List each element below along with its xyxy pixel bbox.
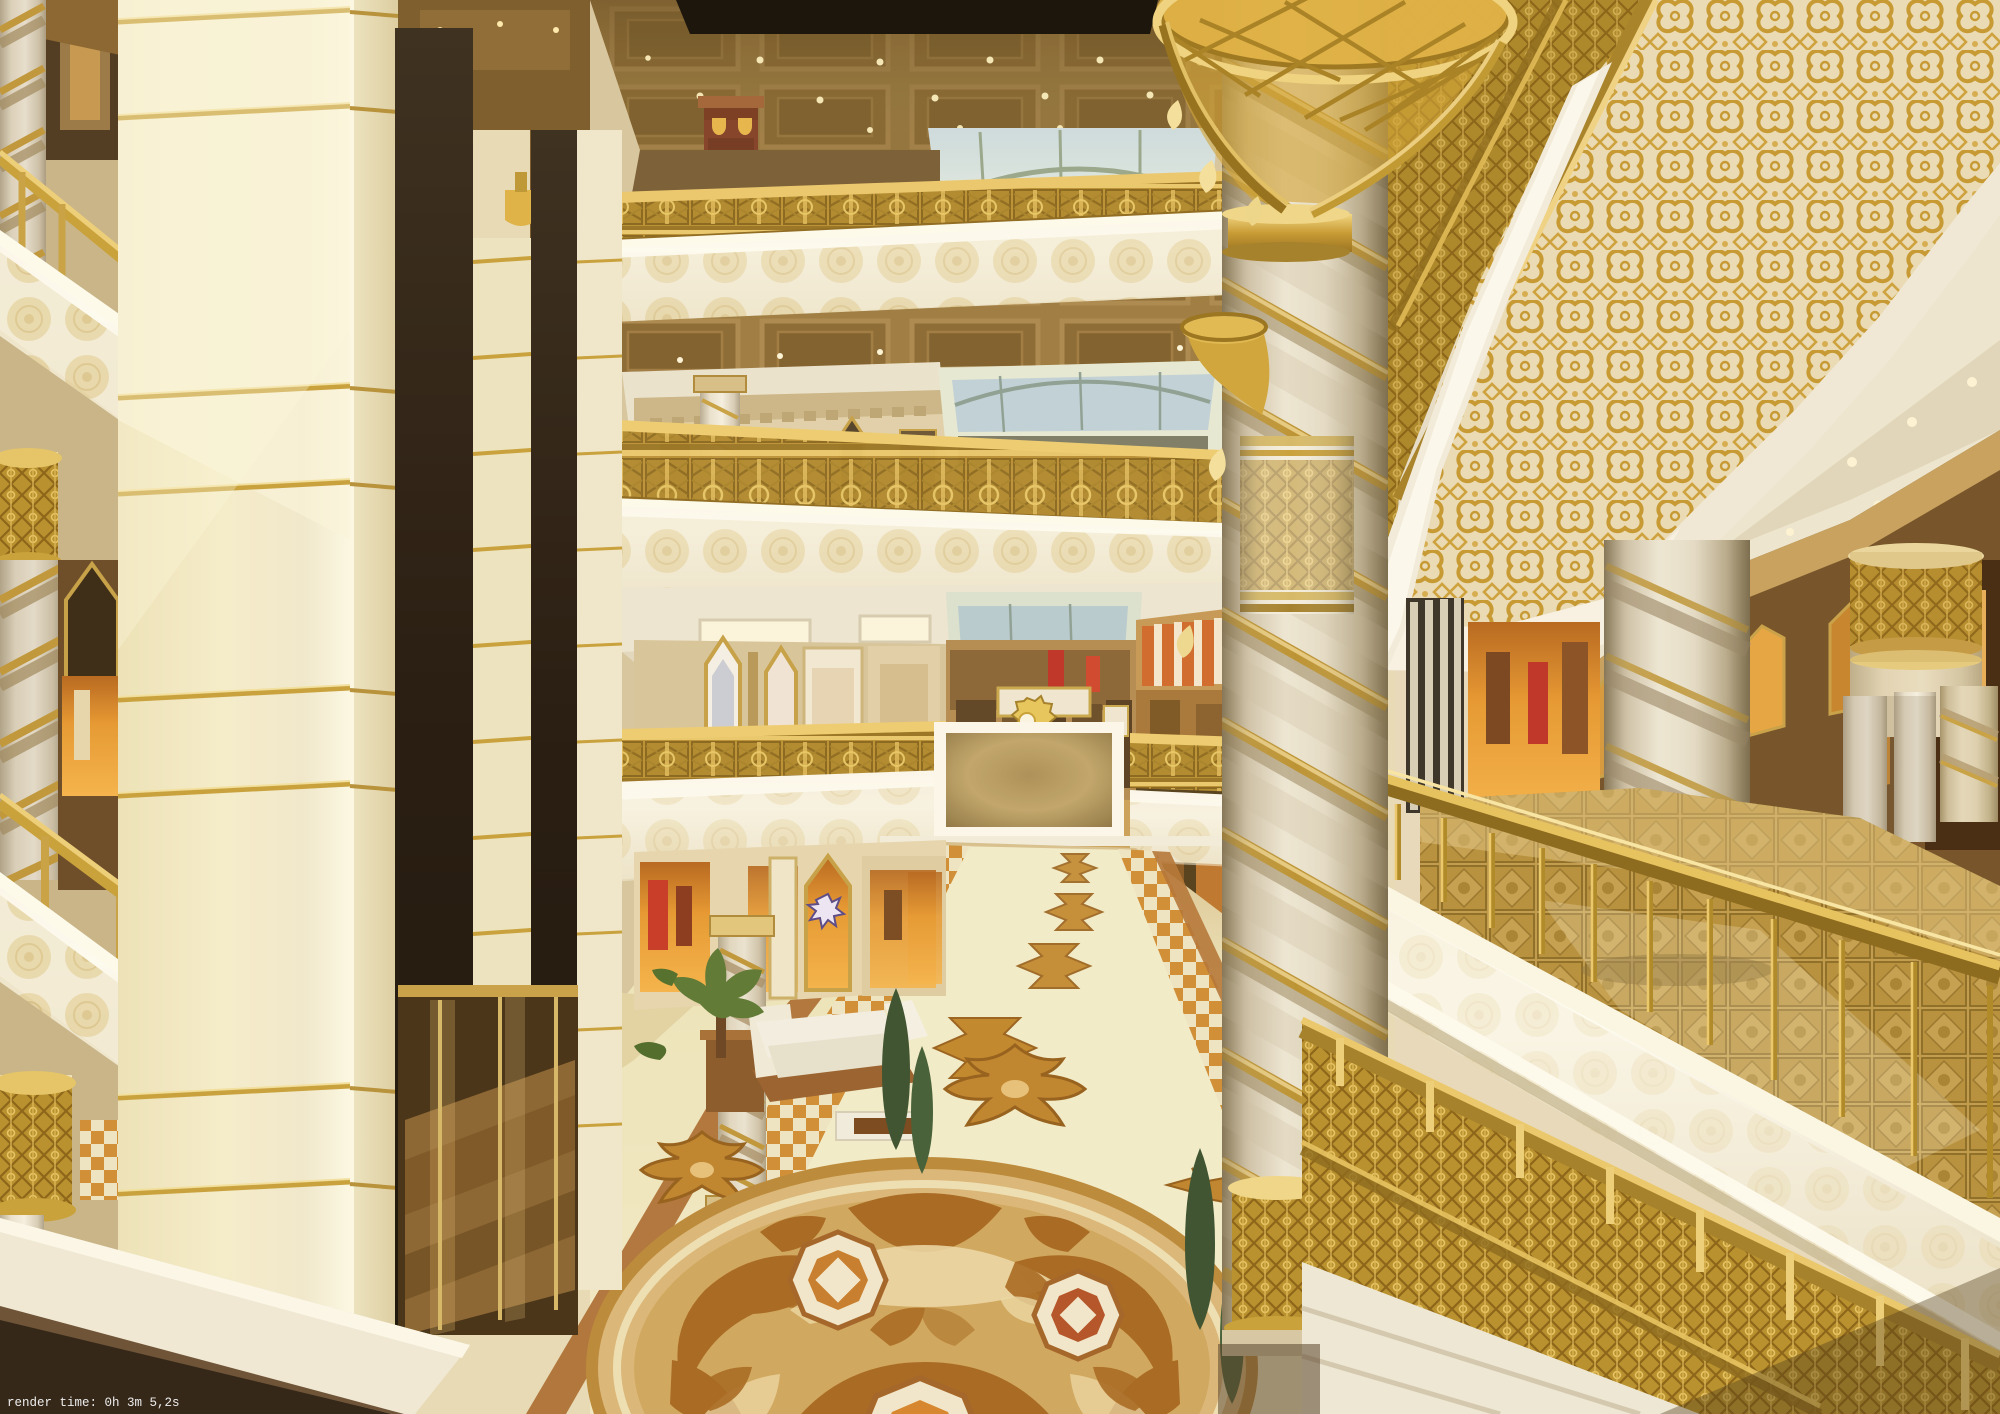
svg-text:render time: 0h 3m 5,2s: render time: 0h 3m 5,2s bbox=[7, 1396, 180, 1410]
